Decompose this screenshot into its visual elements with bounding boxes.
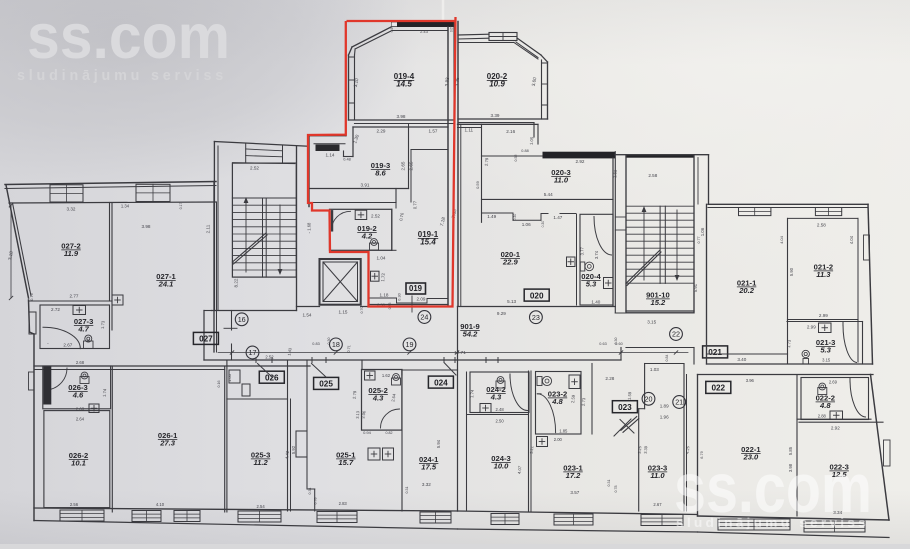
svg-text:020: 020 [530,291,544,300]
svg-text:022: 022 [711,384,725,393]
svg-text:54.2: 54.2 [463,329,479,338]
svg-text:5.92: 5.92 [291,445,296,454]
svg-text:2.54: 2.54 [257,504,266,509]
svg-text:0.31: 0.31 [405,487,409,494]
svg-text:16: 16 [238,315,246,324]
svg-text:1.40: 1.40 [591,300,600,305]
svg-text:23: 23 [532,313,540,322]
svg-text:0.59: 0.59 [475,180,480,189]
svg-text:3.39: 3.39 [643,445,649,454]
svg-text:1.14: 1.14 [326,153,335,158]
svg-text:4.7: 4.7 [77,324,89,333]
svg-text:2.16: 2.16 [506,129,515,134]
svg-text:4.2: 4.2 [361,231,373,240]
svg-text:14.5: 14.5 [396,79,412,88]
svg-text:17.2: 17.2 [566,471,582,480]
svg-text:4.42: 4.42 [284,450,290,459]
svg-text:2.64: 2.64 [76,417,85,422]
svg-text:1.11: 1.11 [464,128,473,133]
svg-text:11.0: 11.0 [554,175,569,184]
svg-text:4.8: 4.8 [819,401,831,410]
svg-text:10.9: 10.9 [489,79,505,88]
svg-text:1.49: 1.49 [487,214,496,219]
svg-text:027: 027 [199,335,213,344]
svg-text:2.67: 2.67 [63,343,72,348]
svg-text:2.52: 2.52 [265,355,274,360]
svg-text:27.3: 27.3 [159,438,176,447]
svg-text:0.31: 0.31 [308,488,312,495]
svg-text:11.9: 11.9 [64,249,79,258]
svg-text:15.4: 15.4 [420,237,436,246]
svg-text:19: 19 [406,340,414,349]
svg-text:2.50: 2.50 [496,419,505,424]
svg-text:4.3: 4.3 [490,392,502,401]
svg-text:0.71: 0.71 [347,345,352,353]
svg-text:0.16: 0.16 [217,381,221,388]
svg-text:5.91: 5.91 [693,283,698,292]
svg-text:8.6: 8.6 [375,168,386,177]
svg-text:4.04: 4.04 [849,235,854,244]
svg-text:0.77: 0.77 [413,200,418,209]
svg-text:2.72: 2.72 [51,307,60,312]
svg-text:2.79: 2.79 [352,390,358,399]
svg-text:2.77: 2.77 [70,294,79,299]
svg-text:3.91: 3.91 [361,183,370,188]
svg-text:20: 20 [645,394,653,403]
svg-text:3.32: 3.32 [422,482,431,487]
svg-text:2.28: 2.28 [605,376,614,381]
svg-text:3.40: 3.40 [737,357,746,362]
svg-text:2.00: 2.00 [554,437,563,442]
svg-text:4.04: 4.04 [779,235,784,244]
svg-text:0.82: 0.82 [386,431,393,435]
svg-text:0.88: 0.88 [521,149,528,153]
svg-text:1.18: 1.18 [380,293,389,298]
svg-text:025: 025 [319,380,333,389]
svg-text:1.73: 1.73 [100,320,106,329]
svg-text:22.9: 22.9 [502,257,519,266]
svg-text:2.56: 2.56 [70,502,79,507]
svg-text:24.1: 24.1 [158,279,174,288]
svg-text:0.70: 0.70 [360,307,364,314]
svg-text:2.09: 2.09 [417,297,426,302]
svg-text:1.03: 1.03 [650,367,659,372]
svg-text:24: 24 [420,313,428,322]
svg-text:2.69: 2.69 [829,380,838,385]
svg-text:5.94: 5.94 [436,439,441,448]
svg-text:0.60: 0.60 [615,342,622,346]
svg-text:1.57: 1.57 [429,129,438,134]
svg-text:5.90: 5.90 [789,267,794,276]
svg-text:2.43: 2.43 [420,29,429,34]
svg-text:0.52: 0.52 [514,155,518,162]
svg-text:4.07: 4.07 [517,465,523,474]
svg-text:1.96: 1.96 [660,415,669,420]
svg-text:5.13: 5.13 [507,299,516,304]
svg-text:4.10: 4.10 [156,502,165,507]
svg-text:0.30: 0.30 [398,293,402,300]
svg-text:0.77: 0.77 [697,237,701,244]
svg-text:3.96: 3.96 [746,378,755,383]
svg-text:2.52: 2.52 [371,214,380,219]
svg-text:18: 18 [332,340,340,349]
svg-text:0.17: 0.17 [179,203,183,210]
svg-text:1.04: 1.04 [377,256,386,261]
svg-text:0.63: 0.63 [599,342,606,346]
svg-text:4.3: 4.3 [372,393,384,402]
svg-text:- 1.68: - 1.68 [307,222,312,233]
svg-text:1.61: 1.61 [612,169,618,178]
svg-text:026: 026 [265,373,279,382]
svg-text:2.65: 2.65 [401,161,406,170]
svg-text:ss.com: ss.com [27,2,230,72]
svg-text:sludinājumu serviss: sludinājumu serviss [676,515,869,530]
svg-text:1.74: 1.74 [469,389,475,398]
svg-text:2.11: 2.11 [206,224,211,233]
svg-text:0.30: 0.30 [513,214,517,221]
svg-text:2.73: 2.73 [581,397,587,406]
svg-text:3.57: 3.57 [570,490,579,495]
svg-text:0.78: 0.78 [614,486,618,493]
svg-text:21: 21 [675,398,683,407]
svg-text:15.7: 15.7 [338,458,354,467]
svg-text:0.78: 0.78 [314,498,318,505]
svg-text:0.31: 0.31 [607,480,611,487]
svg-text:2.92: 2.92 [831,426,840,431]
svg-text:0.30: 0.30 [327,338,331,345]
svg-text:8.22: 8.22 [234,278,239,287]
svg-text:2.99: 2.99 [819,313,828,318]
svg-text:1.06: 1.06 [522,222,531,227]
svg-text:0.84: 0.84 [665,355,669,362]
svg-text:2.83: 2.83 [339,501,348,506]
svg-text:0.83: 0.83 [312,342,319,346]
svg-text:1.47: 1.47 [553,215,562,220]
svg-text:3.74: 3.74 [594,250,599,259]
svg-text:4.8: 4.8 [551,397,563,406]
svg-text:3.98: 3.98 [142,224,151,229]
svg-text:3.83: 3.83 [444,77,450,87]
svg-text:1.85: 1.85 [559,429,568,434]
svg-text:0.91: 0.91 [390,26,394,33]
svg-text:024: 024 [434,378,448,387]
svg-text:2.79: 2.79 [484,157,490,166]
svg-text:1.72: 1.72 [380,272,386,282]
svg-text:2.29: 2.29 [377,129,386,134]
svg-text:1.06: 1.06 [700,227,705,236]
svg-text:3.32: 3.32 [67,207,76,212]
svg-text:2.59: 2.59 [570,394,576,403]
svg-text:15.2: 15.2 [651,298,667,307]
svg-text:5.3: 5.3 [820,345,831,354]
svg-text:20.2: 20.2 [738,286,755,295]
svg-text:3.21: 3.21 [529,445,535,454]
svg-text:9.29: 9.29 [497,311,506,316]
svg-text:11.2: 11.2 [253,458,268,467]
svg-text:sludinājumu serviss: sludinājumu serviss [17,67,227,84]
svg-text:2.52: 2.52 [250,166,259,171]
svg-text:2.65: 2.65 [409,161,414,170]
svg-text:3.15: 3.15 [822,358,831,363]
svg-text:3.77: 3.77 [579,247,584,256]
svg-text:3.39: 3.39 [491,113,500,118]
svg-text:11.0: 11.0 [650,471,665,480]
svg-text:17.5: 17.5 [421,462,437,471]
svg-text:1.62: 1.62 [382,373,391,378]
svg-text:2.48: 2.48 [496,407,505,412]
svg-text:3.15: 3.15 [647,320,656,325]
svg-text:2.99: 2.99 [807,325,816,330]
svg-text:021: 021 [708,348,722,357]
svg-text:3.98: 3.98 [397,114,406,119]
svg-text:10.1: 10.1 [71,458,86,467]
svg-text:2.58: 2.58 [817,223,826,228]
svg-text:1.54: 1.54 [303,313,312,318]
svg-text:5.3: 5.3 [586,279,597,288]
svg-text:1.74: 1.74 [102,388,108,397]
svg-text:1.89: 1.89 [660,404,669,409]
svg-text:4.6: 4.6 [72,390,84,399]
svg-text:023: 023 [618,403,632,412]
svg-text:2.68: 2.68 [76,360,85,365]
svg-text:2.88: 2.88 [818,414,827,419]
svg-text:0.79: 0.79 [30,293,34,300]
svg-text:2.67: 2.67 [653,502,662,507]
svg-text:1.59: 1.59 [627,391,633,400]
svg-text:0.30: 0.30 [541,221,545,228]
svg-text:22: 22 [672,330,680,339]
svg-text:0.05: 0.05 [450,26,454,32]
svg-text:1.05: 1.05 [529,136,535,145]
svg-text:5.44: 5.44 [544,192,553,197]
svg-text:0.94: 0.94 [363,430,372,435]
svg-text:1.15: 1.15 [339,310,348,315]
svg-text:1.73: 1.73 [786,339,792,348]
svg-text:3.25: 3.25 [637,445,643,454]
svg-text:2.92: 2.92 [576,159,585,164]
svg-text:019: 019 [409,284,423,293]
svg-text:10.0: 10.0 [494,461,510,470]
svg-text:0.48: 0.48 [343,157,351,162]
svg-text:11.3: 11.3 [816,270,831,279]
svg-text:1.34: 1.34 [121,204,130,209]
svg-text:2.58: 2.58 [648,173,657,178]
